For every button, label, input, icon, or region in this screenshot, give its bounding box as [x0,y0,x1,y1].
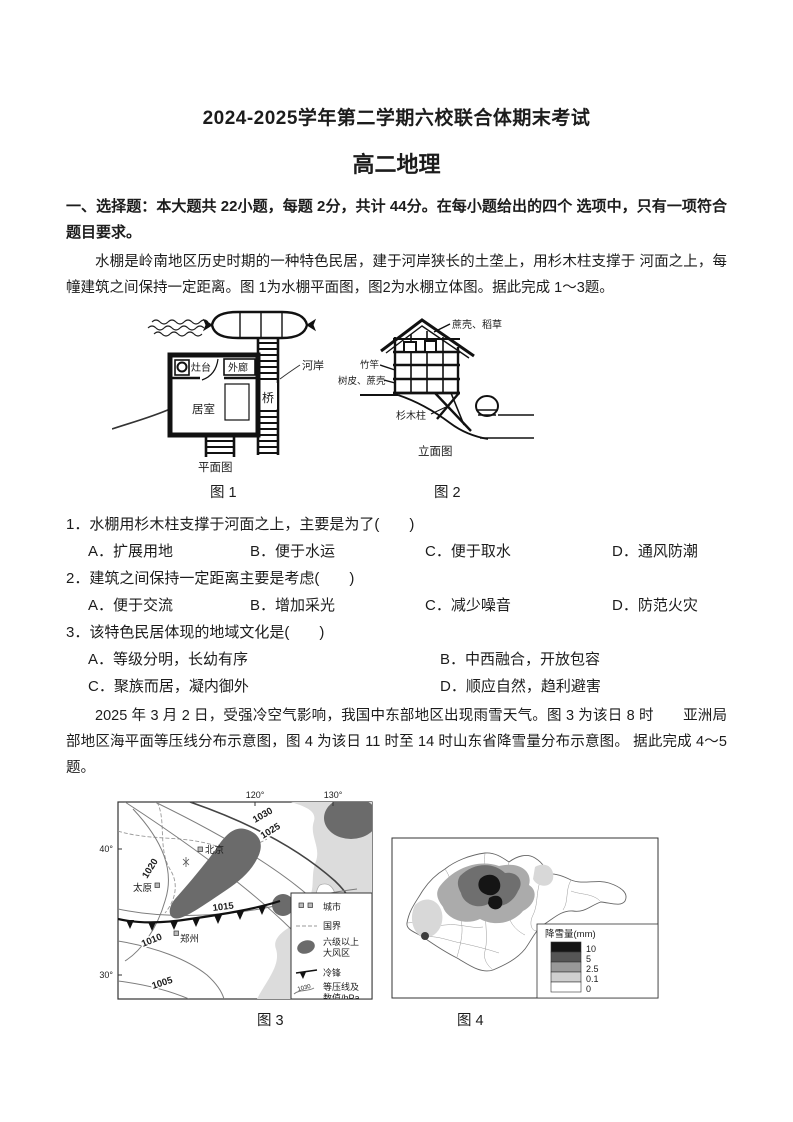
figure3-pressure-map: 北京 太原 郑州 1030 1025 1020 1015 1010 1005 [95,789,380,1009]
option: B．便于水运 [250,538,425,565]
pole-leader-line [380,365,395,370]
city-beijing-label: 北京 [205,844,224,856]
question-block-1: 1．水棚用杉木柱支撑于河面之上，主要是为了( ) A．扩展用地 B．便于水运 C… [66,511,727,700]
passage-2: 2025 年 3 月 2 日，受强冷空气影响，我国中东部地区出现雨雪天气。图 3… [66,703,727,781]
svg-text:30°: 30° [99,970,113,980]
ground-slope [360,395,534,439]
option: A．便于交流 [88,592,250,619]
boat-icon [476,396,498,416]
question-1-stem: 1．水棚用杉木柱支撑于河面之上，主要是为了( ) [66,511,727,538]
option: A．等级分明，长幼有序 [88,646,440,673]
city-zhengzhou-label: 郑州 [180,933,199,945]
boat-icon [204,312,315,338]
question-3-options: A．等级分明，长幼有序 B．中西融合，开放包容 C．聚族而居，凝内御外 D．顺应… [66,646,727,700]
exam-subtitle: 高二地理 [66,147,727,179]
legend-value: 0 [586,984,591,994]
option: C．减少噪音 [425,592,612,619]
svg-text:120°: 120° [246,790,265,800]
question-1-options: A．扩展用地 B．便于水运 C．便于取水 D．通风防潮 [66,538,727,565]
figure2-caption: 图 2 [434,481,461,502]
option: B．增加采光 [250,592,425,619]
figure1-corridor-label: 外廊 [228,361,248,374]
figure-row-2: 北京 太原 郑州 1030 1025 1020 1015 1010 1005 [66,789,727,1009]
option: D．顺应自然，趋利避害 [440,673,727,700]
legend-gale-label-2: 大风区 [323,947,350,958]
figure1-bridge-label: 桥 [262,391,274,405]
map-legend: 降雪量(mm) 10 5 2.5 0.1 0 [537,924,658,998]
legend-value: 10 [586,944,596,954]
figure1-view-label: 平面图 [198,461,233,474]
figure1-stove-label: 灶台 [191,361,211,374]
legend-gale-label-1: 六级以上 [323,936,359,947]
water-waves-icon [148,320,208,336]
question-2-stem: 2．建筑之间保持一定距离主要是考虑( ) [66,565,727,592]
figure-row-1: 桥 河岸 灶台 外廊 居室 [66,307,727,481]
figure4-snowfall-map: 降雪量(mm) 10 5 2.5 0.1 0 [385,831,665,1006]
figure2-wall-label: 树皮、蔗壳 [338,375,386,387]
legend-value: 0.1 [586,974,599,984]
section-heading: 一、选择题：本大题共 22小题，每题 2分，共计 44分。在每小题给出的四个 选… [66,194,727,246]
exam-page: 2024-2025学年第二学期六校联合体期末考试 高二地理 一、选择题：本大题共… [0,0,793,1122]
caption-row-1: 图 1 图 2 [66,481,727,505]
figure2-roof-label: 蔗壳、稻草 [452,318,502,331]
city-taiyuan-label: 太原 [133,882,152,894]
legend-border-label: 国界 [323,921,341,931]
figure2-column-label: 杉木柱 [396,409,426,422]
legend-title: 降雪量(mm) [545,928,596,940]
figure3-caption: 图 3 [257,1009,284,1030]
legend-isobar-label-1: 等压线及 [323,981,359,992]
option: C．聚族而居，凝内御外 [88,673,440,700]
wall-leader-line [384,380,395,383]
page-content: 2024-2025学年第二学期六校联合体期末考试 高二地理 一、选择题：本大题共… [66,0,727,1033]
figure2-elevation-diagram: 蔗壳、稻草 竹竿 树皮、蔗壳 杉木柱 立面图 [338,307,534,481]
figure1-caption: 图 1 [210,481,237,502]
caption-row-2: 图 3 图 4 [66,1009,727,1033]
figure4-caption: 图 4 [457,1009,484,1030]
figure1-riverbank-label: 河岸 [302,359,324,372]
question-3-stem: 3．该特色民居体现的地域文化是( ) [66,619,727,646]
option: D．防范火灾 [612,592,727,619]
question-2-options: A．便于交流 B．增加采光 C．减少噪音 D．防范火灾 [66,592,727,619]
figure1-room-label: 居室 [192,402,215,416]
svg-text:40°: 40° [99,844,113,854]
figure1-plan-diagram: 桥 河岸 灶台 外廊 居室 [112,307,338,481]
legend-city-label: 城市 [323,901,341,912]
option: C．便于取水 [425,538,612,565]
legend-isobar-label-2: 数值/hPa [323,992,360,1003]
figure2-pole-label: 竹竿 [360,359,380,371]
passage-1: 水棚是岭南地区历史时期的一种特色民居，建于河岸狭长的土垄上，用杉木柱支撑于 河面… [66,249,727,301]
svg-text:130°: 130° [324,790,343,800]
option: D．通风防潮 [612,538,727,565]
map-legend: 城市 国界 六级以上 大风区 冷锋 1030 等压线及 数值/hPa [291,893,372,1003]
riverbank-line [112,409,170,429]
house-plan: 灶台 外廊 居室 [170,355,258,457]
figure2-view-label: 立面图 [418,444,453,458]
legend-front-label: 冷锋 [323,967,341,978]
option: B．中西融合，开放包容 [440,646,727,673]
legend-value: 5 [586,954,591,964]
riverbank-leader-line [280,365,300,379]
option: A．扩展用地 [88,538,250,565]
exam-title: 2024-2025学年第二学期六校联合体期末考试 [66,103,727,130]
legend-value: 2.5 [586,964,599,974]
roof-leader-line [434,324,450,332]
